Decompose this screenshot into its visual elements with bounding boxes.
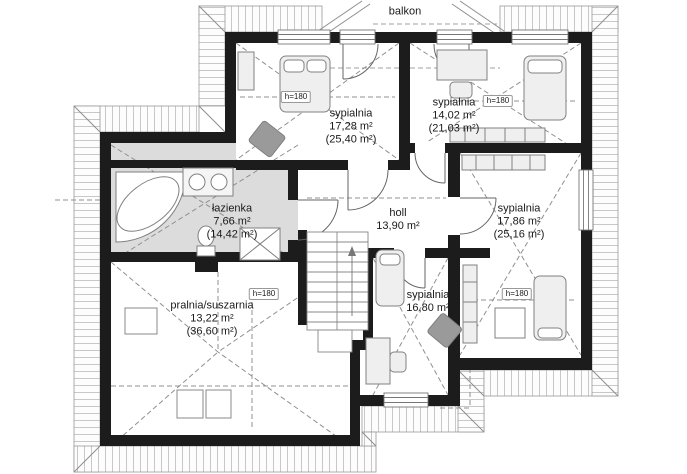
room-area: 7,66 m² <box>207 216 258 229</box>
window <box>512 30 568 44</box>
room-name: sypialnia <box>429 97 480 110</box>
room-area: 13,22 m² <box>170 313 253 326</box>
balcony-label: balkon <box>389 6 421 19</box>
room-label-bedroom-top-left: sypialnia 17,28 m² (25,40 m²) <box>326 108 377 147</box>
chest <box>495 308 525 338</box>
chair <box>390 352 406 372</box>
room-floor-area: (14,42 m²) <box>207 229 258 242</box>
height-marker: h=180 <box>502 288 532 300</box>
balcony-door <box>437 30 472 44</box>
room-label-bedroom-top-right: sypialnia 14,02 m² (21,03 m²) <box>429 97 480 136</box>
staircase <box>307 232 368 352</box>
height-marker: h=180 <box>483 95 513 107</box>
room-floor-area: (21,03 m²) <box>429 123 480 136</box>
window <box>384 393 428 407</box>
room-name: łazienka <box>207 203 258 216</box>
room-label-laundry: pralnia/suszarnia 13,22 m² (36,60 m²) <box>170 300 253 339</box>
room-label-hall: holl 13,90 m² <box>376 207 419 233</box>
desk <box>437 50 487 80</box>
bed <box>534 276 566 340</box>
room-area: 16,80 m² <box>406 302 449 315</box>
room-name: holl <box>376 207 419 220</box>
height-marker: h=180 <box>249 288 279 300</box>
bed <box>376 250 404 306</box>
room-name: sypialnia <box>494 203 545 216</box>
roof-window <box>177 390 203 418</box>
sink <box>183 168 233 196</box>
roof-window <box>125 308 157 334</box>
room-label-bathroom: łazienka 7,66 m² (14,42 m²) <box>207 203 258 242</box>
window <box>278 30 330 44</box>
room-label-bedroom-bottom: sypialnia 16,80 m² <box>406 289 449 315</box>
balcony-door <box>340 30 375 44</box>
room-floor-area: (25,16 m²) <box>494 229 545 242</box>
wardrobe <box>462 155 545 170</box>
room-name: pralnia/suszarnia <box>170 300 253 313</box>
desk <box>366 338 390 384</box>
room-label-bedroom-right: sypialnia 17,86 m² (25,16 m²) <box>494 203 545 242</box>
door <box>348 170 388 210</box>
floor-plan-drawing <box>0 0 687 474</box>
floor-plan: balkon sypialnia 17,28 m² (25,40 m²) syp… <box>0 0 687 474</box>
closet-rail <box>463 265 477 343</box>
room-area: 17,28 m² <box>326 121 377 134</box>
armchair <box>248 120 286 158</box>
room-area: 17,86 m² <box>494 216 545 229</box>
bed <box>280 56 330 112</box>
room-area: 13,90 m² <box>376 220 419 233</box>
door <box>415 153 445 183</box>
room-name: sypialnia <box>406 289 449 302</box>
room-floor-area: (36,60 m²) <box>170 326 253 339</box>
bed <box>524 56 566 120</box>
roof-window <box>206 390 231 418</box>
height-marker: h=180 <box>281 91 311 103</box>
room-name: sypialnia <box>326 108 377 121</box>
room-floor-area: (25,40 m²) <box>326 134 377 147</box>
dresser <box>238 52 254 90</box>
room-area: 14,02 m² <box>429 110 480 123</box>
window <box>579 170 593 230</box>
